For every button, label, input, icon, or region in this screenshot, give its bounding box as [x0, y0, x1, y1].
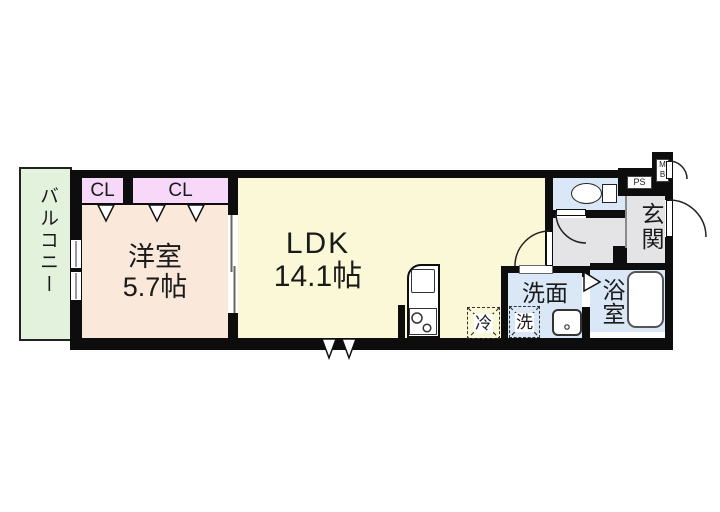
toilet-bowl-icon: [571, 183, 602, 204]
meter-box-label: M B: [656, 160, 669, 179]
closet-right-label: CL: [133, 180, 228, 202]
meter-box-line2: B: [656, 170, 669, 180]
toilet-door-leaf: [556, 209, 586, 216]
wall-toilet-bottom-b: [586, 210, 625, 218]
ldk-name: LDK: [238, 227, 398, 260]
ldk-label: LDK 14.1帖: [238, 227, 398, 293]
wall-partition-bottom: [228, 313, 238, 350]
hall-door-leaf: [546, 231, 553, 266]
wall-partition-top: [228, 170, 238, 215]
kitchen-sink-icon: [411, 269, 435, 293]
floor-plan: バルコニー CL CL 洋室 5.7帖 LDK 14.1帖 玄関 洗面 浴室 P…: [0, 0, 720, 512]
sliding-door-icon: [232, 215, 235, 313]
refrigerator-space-label: 冷: [467, 314, 500, 334]
wall-hall-entrance-stub: [613, 246, 627, 266]
wall-bath-bottom-seg: [582, 307, 590, 350]
wall-toilet-bottom-a: [545, 210, 556, 218]
western-room-name: 洋室: [82, 243, 228, 273]
bathroom-label: 浴室: [595, 278, 629, 328]
closet-left-label: CL: [82, 180, 123, 202]
wall-washroom-left: [501, 266, 508, 350]
washbasin-icon: [552, 309, 582, 336]
wall-kitchen-stub: [398, 305, 405, 338]
meter-box-line1: M: [656, 160, 669, 170]
door-arc-entrance: [669, 200, 706, 237]
bath-door-opening: [582, 277, 590, 307]
window-west-upper: [71, 240, 81, 268]
refrigerator-kanji: 冷: [474, 314, 493, 333]
wall-closet-divider: [123, 170, 133, 204]
wall-entrance-bottom: [590, 263, 673, 270]
washroom-label: 洗面: [510, 274, 580, 308]
balcony-label: バルコニー: [34, 186, 61, 336]
window-west-lower: [71, 272, 81, 300]
stove-icon: [409, 308, 437, 335]
ldk-size: 14.1帖: [238, 260, 398, 293]
western-room-size: 5.7帖: [82, 273, 228, 303]
closet-front-line: [82, 203, 228, 205]
pipe-space-label: PS: [627, 177, 652, 187]
washer-kanji: 洗: [515, 313, 534, 332]
toilet-tank-icon: [602, 184, 617, 203]
washroom-entry-opening: [519, 265, 553, 274]
wall-top: [70, 170, 656, 178]
entrance-step-line: [625, 196, 627, 248]
entrance-label: 玄関: [634, 202, 668, 260]
bathtub-icon: [627, 271, 664, 328]
western-room-label: 洋室 5.7帖: [82, 243, 228, 302]
washer-space-label: 洗: [509, 313, 540, 333]
wall-bath-top-seg: [582, 266, 590, 277]
